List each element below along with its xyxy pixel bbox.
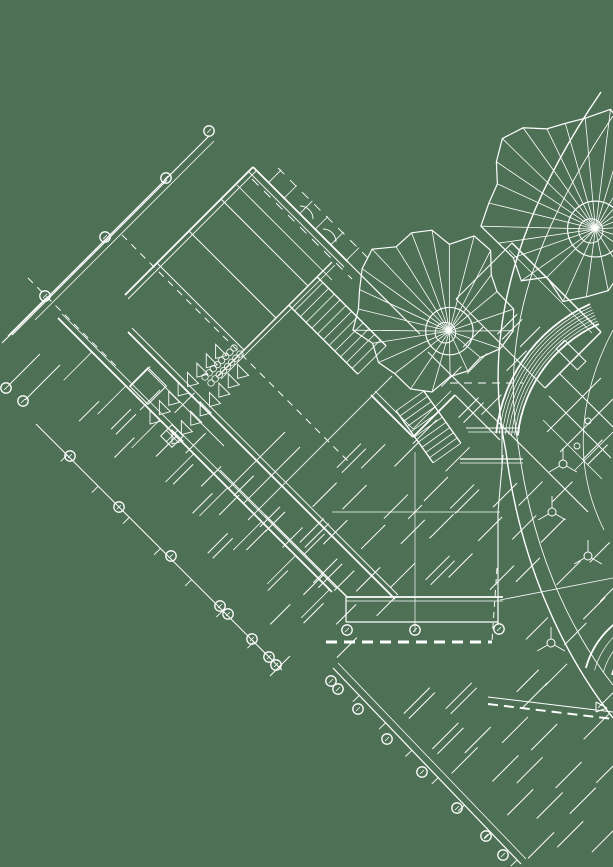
stair-runs [289, 277, 461, 463]
curved-ramp-arcs [496, 92, 613, 718]
planting-target-markers [537, 448, 602, 651]
ground-hatching [79, 314, 613, 858]
site-plan-drawing [0, 0, 613, 867]
architectural-site-plan [0, 0, 613, 867]
